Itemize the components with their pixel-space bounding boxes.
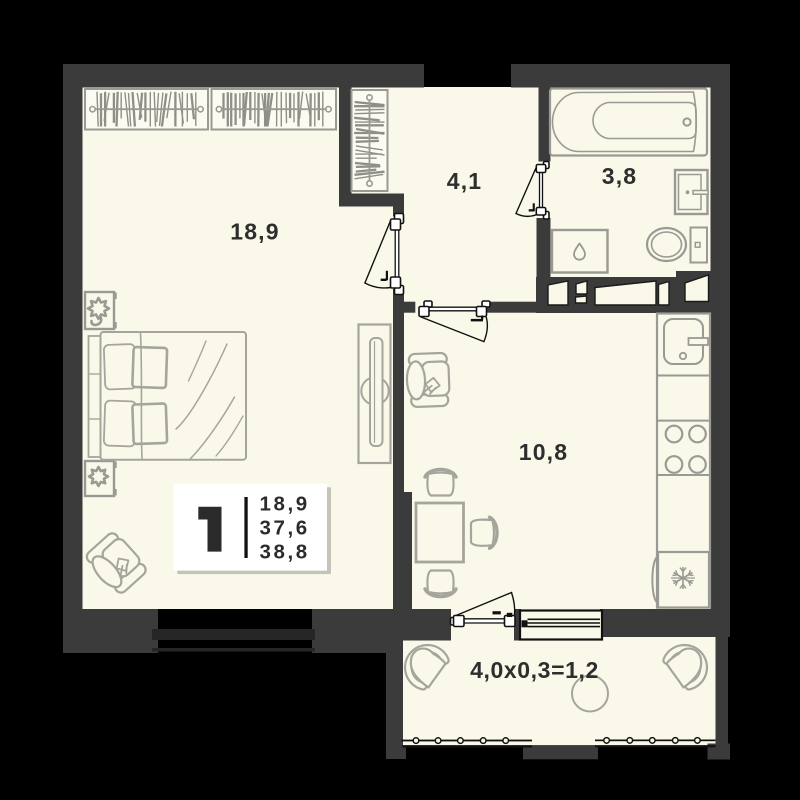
svg-text:18,9: 18,9 <box>230 219 280 245</box>
svg-text:37,6: 37,6 <box>260 516 310 539</box>
svg-text:10,8: 10,8 <box>519 439 569 465</box>
svg-text:4,1: 4,1 <box>447 168 483 194</box>
svg-text:18,9: 18,9 <box>260 492 310 515</box>
svg-text:3,8: 3,8 <box>602 163 638 189</box>
svg-text:38,8: 38,8 <box>260 541 310 564</box>
svg-text:4,0x0,3=1,2: 4,0x0,3=1,2 <box>470 657 599 683</box>
